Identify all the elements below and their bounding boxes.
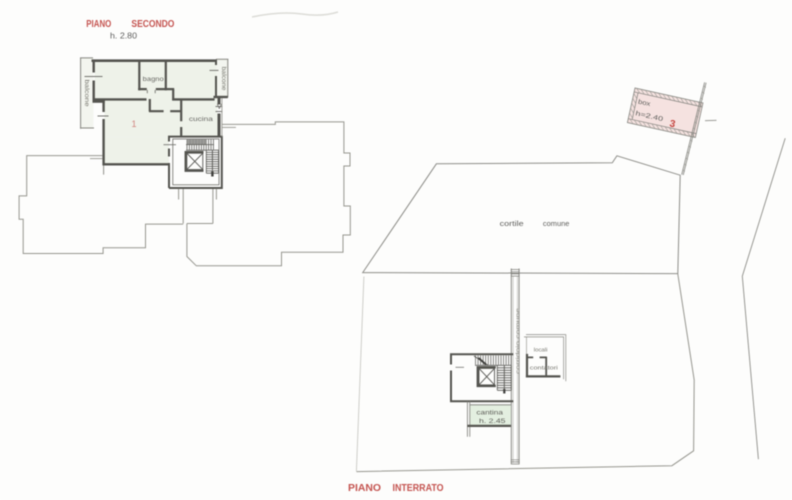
svg-text:cantina: cantina bbox=[476, 409, 503, 416]
svg-text:cortile: cortile bbox=[500, 219, 524, 228]
svg-text:contatori: contatori bbox=[530, 365, 558, 371]
svg-text:comune: comune bbox=[543, 219, 570, 228]
svg-text:SECONDO: SECONDO bbox=[131, 19, 174, 30]
svg-text:PIANO: PIANO bbox=[348, 483, 381, 494]
svg-text:h. 2.45: h. 2.45 bbox=[479, 418, 506, 425]
svg-text:balcone: balcone bbox=[220, 67, 227, 92]
svg-text:INTERRATO: INTERRATO bbox=[393, 483, 444, 494]
svg-text:corridoio comune: corridoio comune bbox=[515, 308, 521, 374]
svg-text:PIANO: PIANO bbox=[86, 19, 111, 30]
svg-text:1: 1 bbox=[131, 119, 136, 129]
svg-text:locali: locali bbox=[534, 347, 548, 353]
svg-text:bagno: bagno bbox=[143, 76, 164, 83]
svg-text:balcone: balcone bbox=[83, 80, 90, 108]
svg-text:h. 2.80: h. 2.80 bbox=[110, 31, 137, 41]
svg-text:cucina: cucina bbox=[189, 116, 213, 123]
